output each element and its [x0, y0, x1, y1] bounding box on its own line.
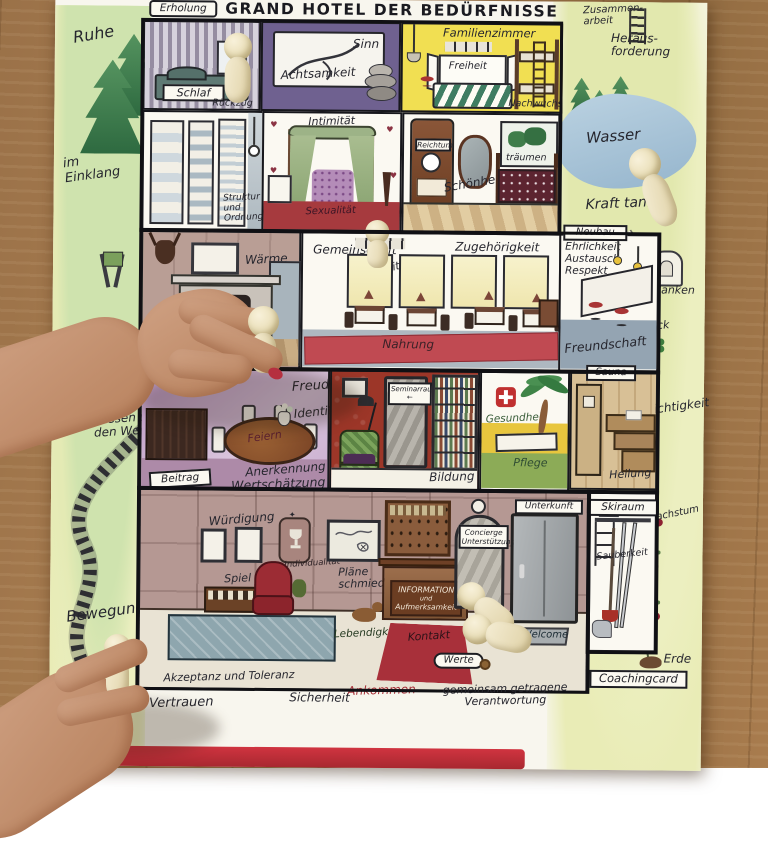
chair [440, 315, 449, 331]
label-sicherheit: Sicherheit [289, 691, 350, 705]
bar-stool [615, 308, 629, 314]
label-zugehoerigkeit: Zugehörigkeit [455, 241, 539, 255]
red-armchair [252, 595, 294, 615]
room-ankleidezimmer[interactable]: Struktur und Ordnung [141, 110, 262, 231]
label-bildung: Bildung [429, 470, 475, 485]
photo-row [445, 42, 492, 52]
hanging-lamp-icon [413, 24, 415, 52]
heart-icon: ♥ [386, 126, 393, 135]
label-unterkunft: Unterkunft [515, 499, 583, 514]
map-frame: × [326, 520, 380, 562]
pendant-lamp-icon [248, 145, 260, 157]
striped-bed [432, 82, 512, 109]
werte-bubble: Werte [434, 652, 484, 668]
label-erde: Erde [664, 653, 692, 667]
picture-frame [200, 528, 226, 562]
label-verantwortung: gemeinsam getragene Verantwortung [425, 681, 586, 710]
label-aufmerksamkeit: Aufmerksamkeit [392, 602, 460, 612]
nightstand [268, 175, 292, 203]
clock-face [421, 152, 441, 172]
label-sexualitaet: Sexualität [305, 205, 356, 218]
pendant-lamp-icon [613, 256, 622, 265]
deer-antler-icon [148, 232, 156, 246]
sauna-door [575, 384, 602, 476]
room-bar[interactable]: Ehrlichkeit Austausch Respekt Freundscha… [558, 234, 659, 373]
label-sauna: Sauna [586, 365, 636, 381]
first-aid-icon [496, 387, 516, 407]
room-spiegelzimmer[interactable]: Reichtum Schönheit träumen [401, 112, 560, 233]
elevator-door [510, 513, 579, 624]
label-traeumen: träumen [506, 153, 547, 164]
label-herausforderung: Heraus- forderung [611, 32, 670, 59]
wood-floor [403, 202, 557, 233]
key-rack [384, 500, 450, 557]
label-nachwuchs: Nachwuchs [508, 99, 562, 110]
label-nahrung: Nahrung [382, 338, 434, 352]
chair [388, 314, 397, 330]
label-struktur-und-ordnung: Struktur und Ordnung [223, 192, 262, 224]
tree-in-window [524, 127, 546, 145]
board-title: GRAND HOTEL DER BEDÜRFNISSE [225, 1, 555, 21]
trophy-niche [278, 517, 310, 563]
dining-table [475, 307, 505, 325]
heart-icon: ♥ [270, 121, 277, 130]
room-sauna[interactable]: Heilung [569, 372, 658, 491]
pendant-lamp-icon [253, 117, 255, 145]
dining-table [407, 308, 437, 326]
trophy-icon [290, 529, 302, 539]
label-kontakt: Kontakt [407, 629, 450, 644]
deer-antler-icon [172, 232, 180, 246]
green-bag [292, 579, 306, 597]
label-unterstuetzung: Unterstützung [462, 537, 506, 546]
bed-pillow [167, 66, 207, 80]
lounger [495, 432, 557, 452]
milestone-icon [660, 260, 673, 276]
sideboard [539, 299, 559, 327]
bed-blanket [312, 169, 354, 205]
x-mark-icon: × [360, 543, 368, 553]
bookshelf [431, 374, 478, 470]
zen-stones-icon [360, 60, 396, 108]
room-wellnessraum[interactable]: Gesundheit Pflege [479, 371, 570, 492]
concierge-sign: Concierge Unterstützung [459, 525, 509, 549]
chair [464, 313, 473, 329]
label-familienzimmer: Familienzimmer [443, 27, 535, 41]
trophy-icon [291, 545, 301, 548]
wooden-peg[interactable] [363, 220, 391, 268]
photo-scene: Ruhe im Einklang Wissen um den Weg Beweg… [0, 0, 768, 768]
stool [421, 76, 434, 81]
label-skiraum: Skiraum [587, 499, 659, 516]
label-ankommen: Ankommen [347, 683, 416, 698]
chair [344, 312, 353, 328]
chair [508, 315, 517, 331]
bar-stool [589, 302, 603, 308]
label-forderung: forderung [611, 45, 670, 59]
room-familienzimmer[interactable]: Familienzimmer Freiheit Nachwuchs [400, 22, 563, 113]
sauna-bench [613, 432, 655, 450]
towel [626, 410, 642, 420]
hedgehog-icon [640, 656, 662, 668]
label-spiel: Spiel [224, 572, 251, 585]
wooden-peg[interactable] [220, 33, 255, 103]
dining-table [355, 306, 385, 324]
label-reichtum: Reichtum [415, 138, 451, 151]
label-neubau: Neubau [563, 225, 627, 242]
label-sinn: Sinn [353, 38, 379, 52]
shelf-column [187, 120, 214, 224]
picture-frame [191, 242, 239, 274]
clock-icon [471, 499, 486, 514]
pendant-lamp-icon [637, 246, 639, 262]
window [451, 255, 497, 309]
label-concierge: Concierge [462, 528, 506, 537]
door-handle [519, 564, 524, 578]
label-freiheit: Freiheit [449, 61, 487, 73]
blue-rug [168, 614, 336, 661]
easel-canvas [103, 252, 123, 267]
room-intimzimmer[interactable]: ♥ ♥ ♥ ♥ ♥ Intimität Sexualität [261, 111, 402, 232]
label-seminarraum: Seminarraum [391, 385, 429, 394]
pendant-lamp-icon [617, 240, 619, 256]
hanging-lamp-icon [407, 52, 421, 62]
map-sketch [331, 525, 375, 557]
snail-icon [480, 659, 491, 670]
room-speisesaal[interactable]: Gemeinschaft Zugehörigkeit Offenheit [300, 231, 561, 371]
arrow-left-icon: ← [391, 394, 429, 403]
floral-bed [498, 169, 556, 204]
floor-lamp-icon [358, 396, 374, 406]
seminarraum-sign: Seminarraum ← [388, 382, 432, 405]
label-pflege: Pflege [513, 457, 547, 470]
label-coachingcard: Coachingcard [589, 670, 687, 689]
label-information: INFORMATION [392, 585, 460, 595]
boot-icon [592, 620, 612, 638]
label-heilung: Heilung [609, 467, 652, 482]
room-lobby[interactable]: Würdigung ✦ Individualität Spiel [137, 488, 589, 692]
picture-frame [234, 527, 262, 563]
label-erholung: Erholung [149, 0, 217, 17]
room-achtsamkeitszimmer[interactable]: Sinn Achtsamkeit [260, 21, 401, 112]
shelf-column [149, 120, 184, 224]
